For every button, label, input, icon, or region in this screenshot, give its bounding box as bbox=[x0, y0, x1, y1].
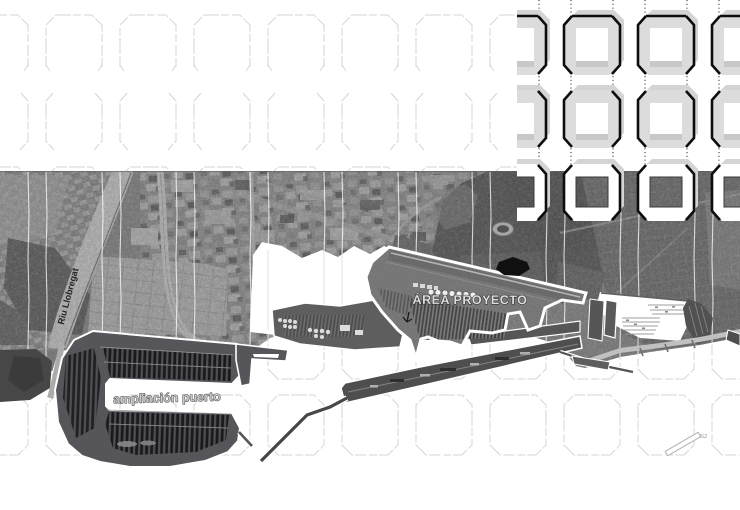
svg-text:ampliación puerto: ampliación puerto bbox=[113, 390, 221, 407]
svg-text:ÁREA PROYECTO: ÁREA PROYECTO bbox=[413, 292, 528, 307]
svg-text:S2: S2 bbox=[700, 434, 708, 440]
